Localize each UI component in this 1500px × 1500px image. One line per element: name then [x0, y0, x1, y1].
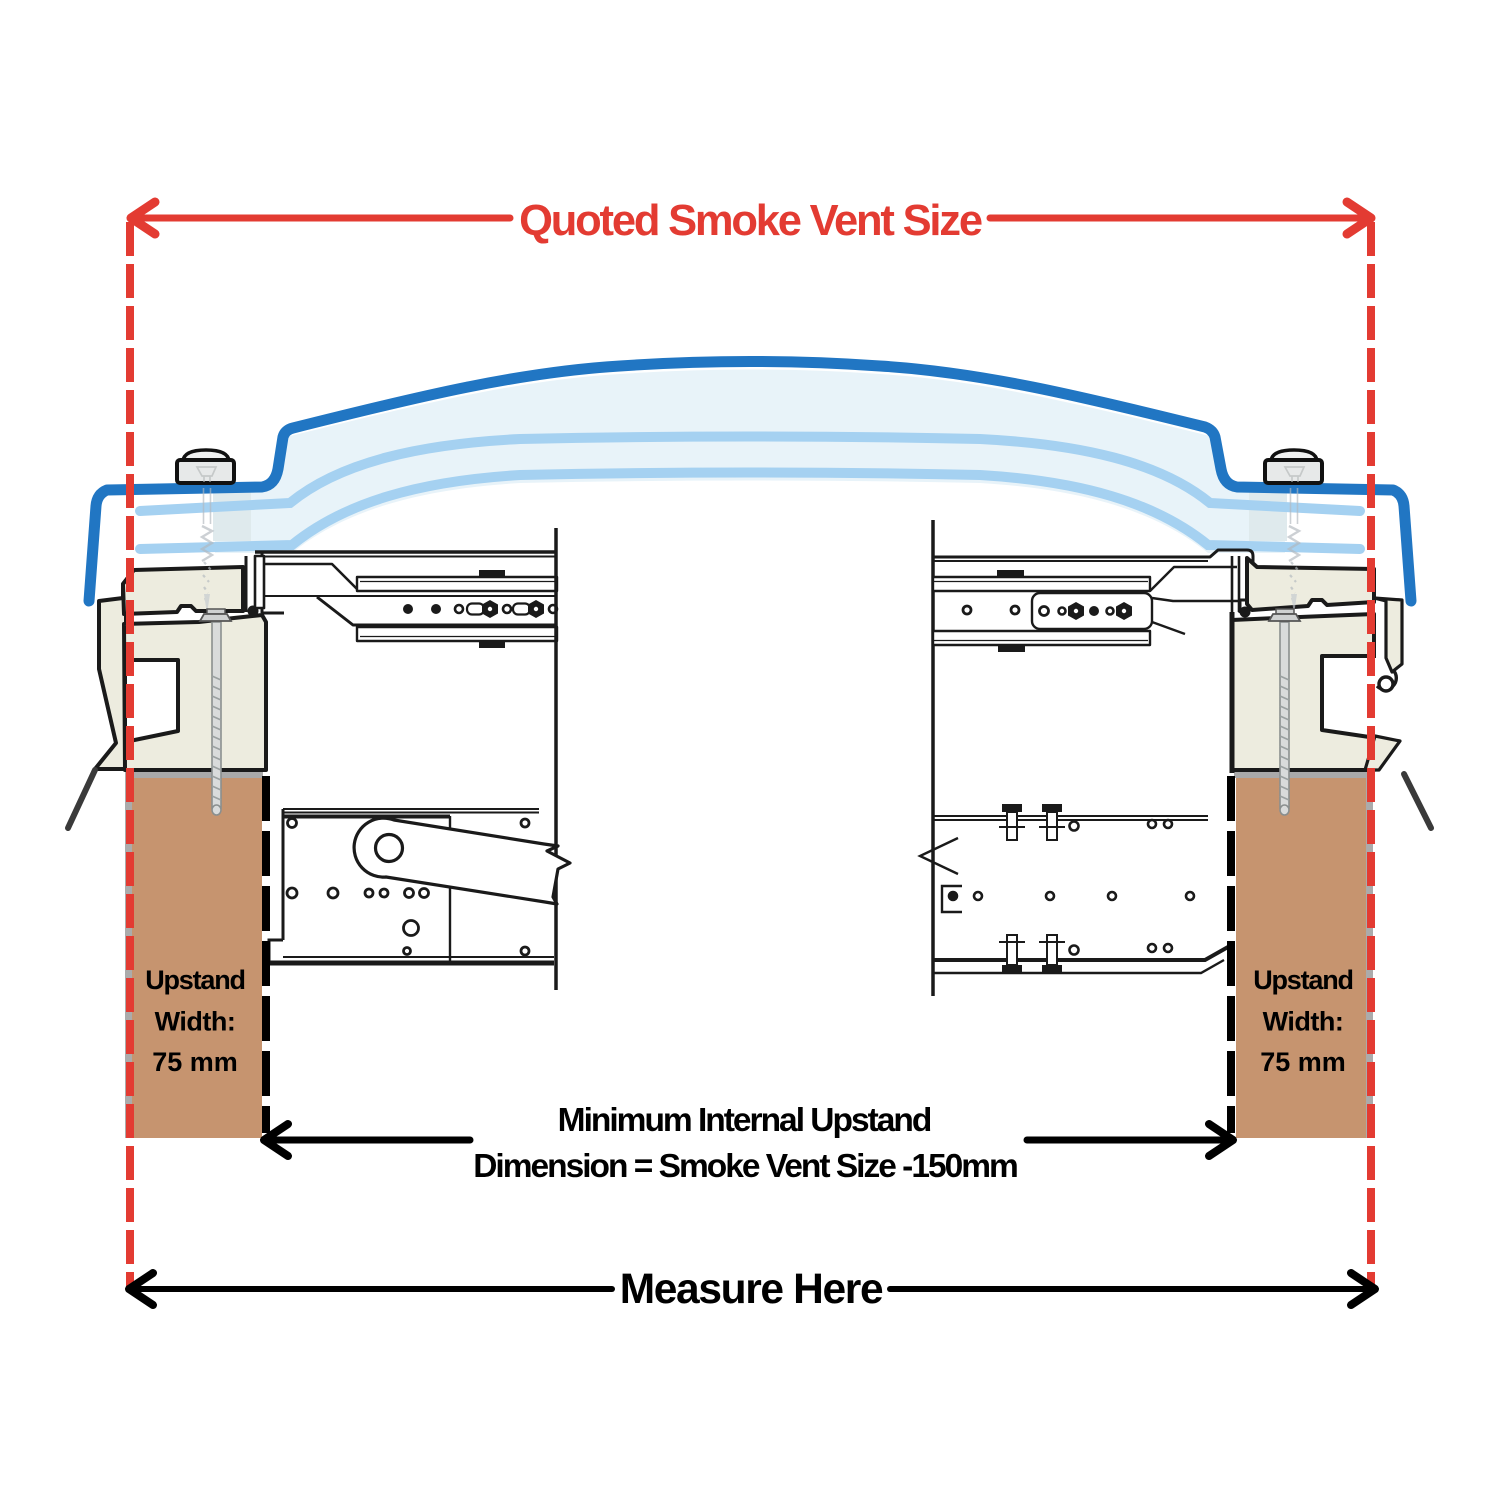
svg-text:Width:: Width: [155, 1007, 236, 1037]
svg-text:Quoted Smoke Vent Size: Quoted Smoke Vent Size [519, 197, 982, 245]
svg-text:Upstand: Upstand [145, 965, 245, 995]
svg-text:Minimum Internal Upstand: Minimum Internal Upstand [558, 1102, 931, 1139]
svg-text:Dimension = Smoke Vent Size -1: Dimension = Smoke Vent Size -150mm [473, 1148, 1017, 1185]
svg-text:Width:: Width: [1263, 1007, 1344, 1037]
svg-text:75 mm: 75 mm [1260, 1047, 1346, 1077]
svg-text:75 mm: 75 mm [152, 1047, 238, 1077]
svg-text:Measure Here: Measure Here [620, 1266, 883, 1313]
svg-text:Upstand: Upstand [1253, 965, 1353, 995]
